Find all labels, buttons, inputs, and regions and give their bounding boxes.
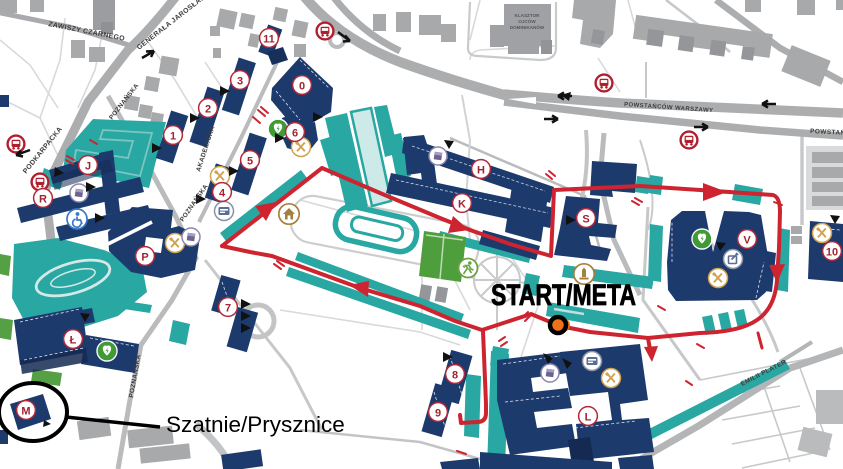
- svg-text:8: 8: [452, 370, 458, 382]
- svg-text:9: 9: [435, 408, 441, 420]
- svg-text:M: M: [21, 406, 30, 418]
- svg-text:10: 10: [826, 247, 838, 259]
- svg-text:J: J: [85, 161, 91, 173]
- svg-text:11: 11: [263, 34, 275, 46]
- svg-text:S: S: [582, 214, 589, 226]
- svg-text:2: 2: [205, 104, 211, 116]
- svg-text:START/META: START/META: [491, 279, 636, 312]
- svg-text:DOMINIKANÓW: DOMINIKANÓW: [510, 23, 545, 30]
- svg-text:Szatnie/Prysznice: Szatnie/Prysznice: [166, 412, 345, 437]
- svg-text:1: 1: [170, 131, 176, 143]
- svg-text:V: V: [743, 235, 751, 247]
- svg-text:Ł: Ł: [70, 335, 77, 347]
- svg-text:H: H: [477, 165, 485, 177]
- svg-text:K: K: [458, 199, 466, 211]
- svg-text:KLASZTOR: KLASZTOR: [515, 13, 541, 18]
- svg-text:L: L: [585, 412, 592, 424]
- svg-text:R: R: [39, 194, 47, 206]
- svg-text:5: 5: [247, 156, 253, 168]
- svg-text:OJCÓW: OJCÓW: [518, 17, 536, 24]
- svg-text:7: 7: [225, 303, 231, 315]
- svg-text:0: 0: [299, 81, 305, 93]
- svg-text:6: 6: [292, 128, 298, 140]
- svg-text:4: 4: [219, 188, 226, 200]
- svg-text:3: 3: [237, 76, 243, 88]
- svg-text:P: P: [141, 252, 148, 264]
